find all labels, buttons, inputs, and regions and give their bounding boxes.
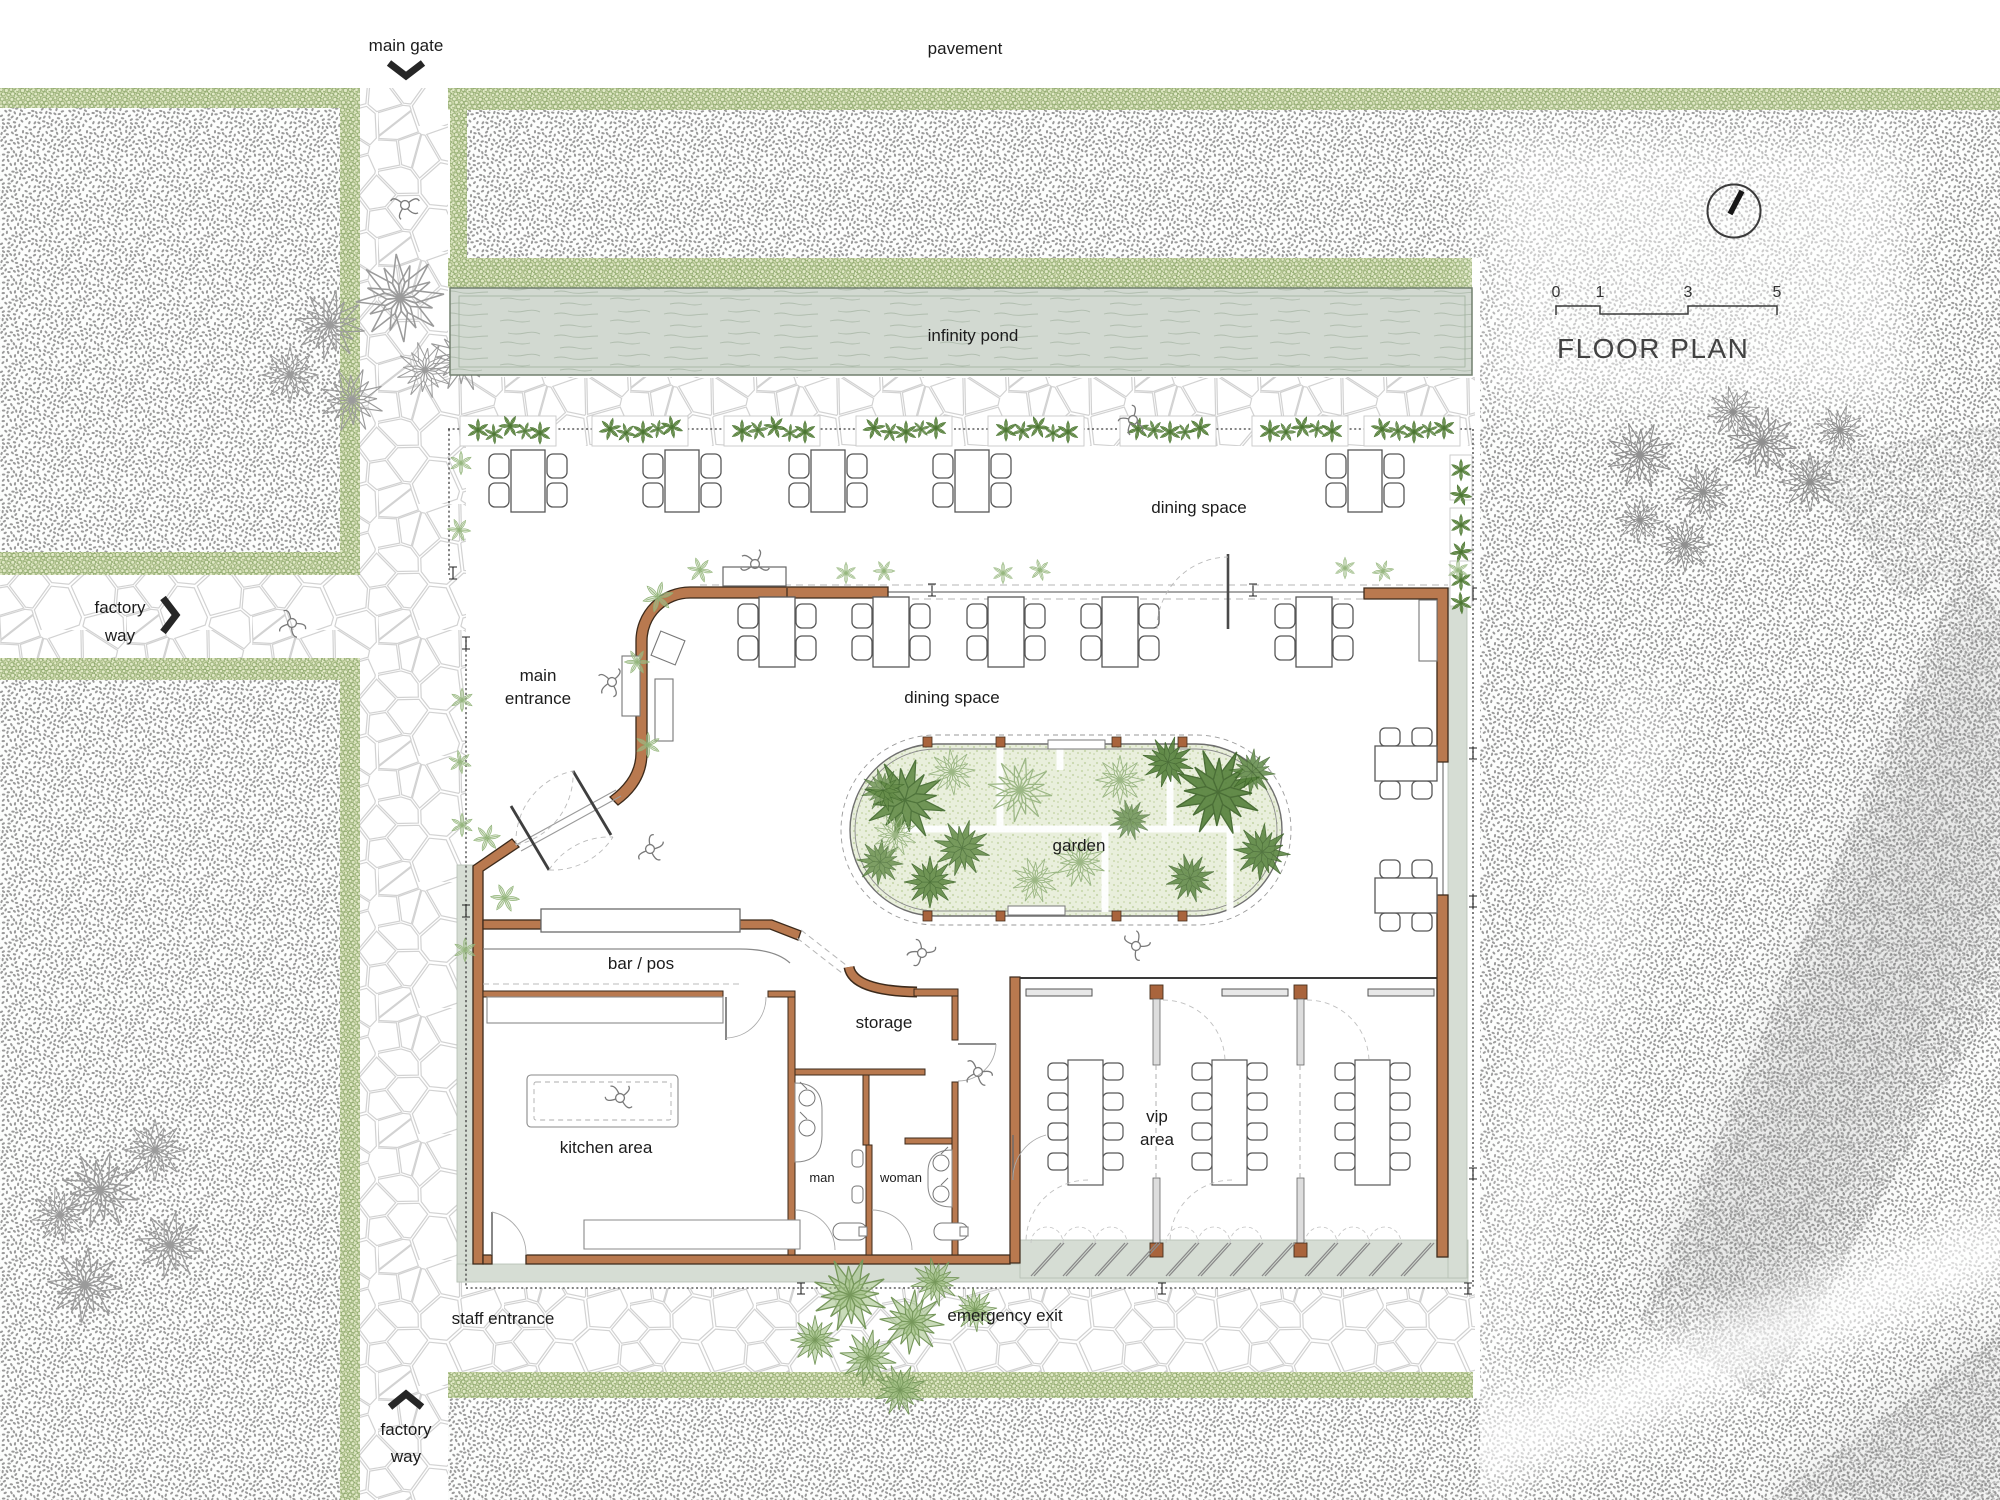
svg-text:area: area: [1140, 1130, 1175, 1149]
svg-text:entrance: entrance: [505, 689, 571, 708]
svg-text:kitchen area: kitchen area: [560, 1138, 653, 1157]
svg-text:factory: factory: [94, 598, 146, 617]
svg-text:storage: storage: [856, 1013, 913, 1032]
svg-text:way: way: [104, 626, 136, 645]
svg-text:way: way: [390, 1447, 422, 1466]
svg-text:factory: factory: [380, 1420, 432, 1439]
svg-text:dining space: dining space: [904, 688, 999, 707]
svg-text:man: man: [809, 1170, 834, 1185]
svg-text:infinity pond: infinity pond: [928, 326, 1019, 345]
svg-text:main gate: main gate: [369, 36, 444, 55]
svg-text:FLOOR PLAN: FLOOR PLAN: [1557, 333, 1749, 364]
svg-text:0: 0: [1552, 284, 1561, 301]
svg-text:5: 5: [1773, 284, 1782, 301]
svg-text:vip: vip: [1146, 1107, 1168, 1126]
svg-text:main: main: [520, 666, 557, 685]
svg-text:3: 3: [1684, 284, 1693, 301]
svg-text:dining space: dining space: [1151, 498, 1246, 517]
svg-text:bar / pos: bar / pos: [608, 954, 674, 973]
svg-text:pavement: pavement: [928, 39, 1003, 58]
svg-text:1: 1: [1596, 284, 1605, 301]
svg-text:garden: garden: [1053, 836, 1106, 855]
svg-text:emergency exit: emergency exit: [947, 1306, 1063, 1325]
svg-text:woman: woman: [879, 1170, 922, 1185]
svg-text:staff entrance: staff entrance: [452, 1309, 555, 1328]
